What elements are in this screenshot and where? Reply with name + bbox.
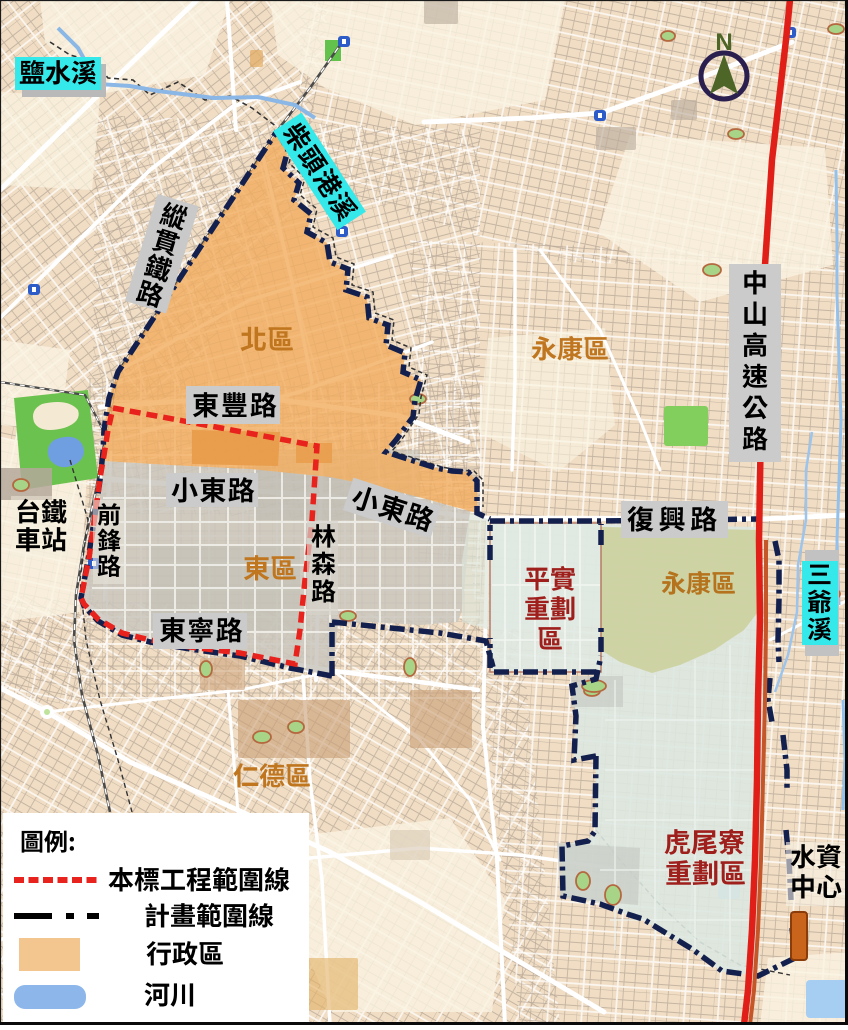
svg-text:N: N	[715, 29, 732, 56]
